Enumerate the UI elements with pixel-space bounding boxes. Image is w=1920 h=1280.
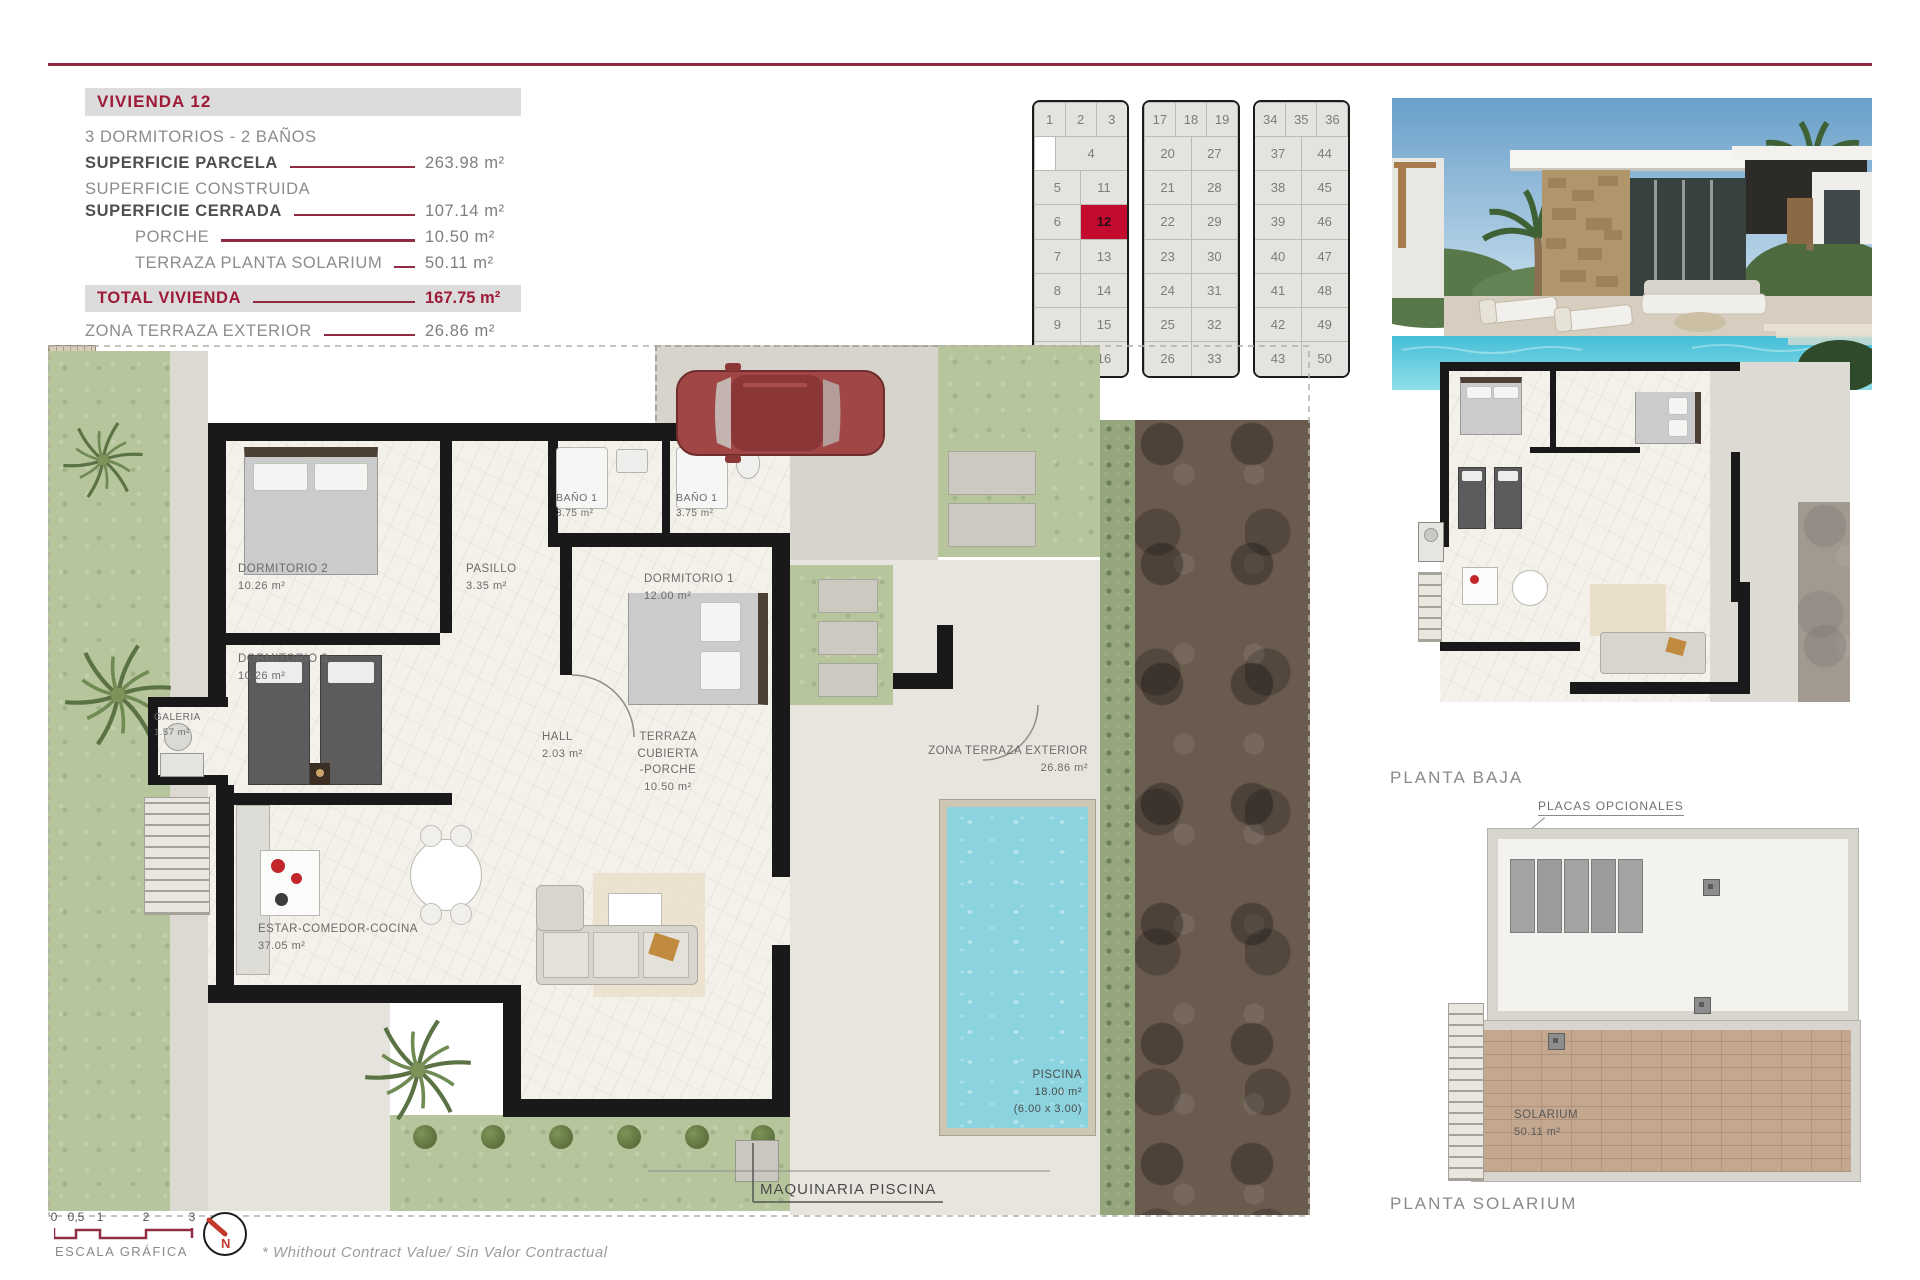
main-floor-plan: DORMITORIO 2 10.26 m² DORMITORIO 3 10.26… [48, 345, 1310, 1217]
leader-line [324, 334, 415, 336]
spec-row: TERRAZA PLANTA SOLARIUM 50.11 m² [85, 254, 521, 273]
site-grid-cell: 39 [1254, 204, 1302, 239]
scale-tick: 0 [51, 1210, 58, 1224]
site-grid-cell: 22 [1144, 204, 1192, 239]
site-grid-cell: 19 [1206, 102, 1238, 137]
site-grid-row: 4249 [1255, 308, 1348, 342]
site-grid-cell: 34 [1254, 102, 1286, 137]
spec-label: SUPERFICIE CERRADA [85, 202, 282, 221]
site-grid-row: 3845 [1255, 171, 1348, 205]
room-label: PISCINA 18.00 m² (6.00 x 3.00) [960, 1067, 1082, 1118]
leader-line [253, 301, 415, 303]
room-label: BAÑO 1 3.75 m² [676, 491, 718, 522]
spec-row: SUPERFICIE CONSTRUIDA [85, 180, 521, 199]
site-grid-cell: 42 [1254, 307, 1302, 342]
spec-row: PORCHE 10.50 m² [85, 228, 521, 247]
north-arrow: N [200, 1210, 250, 1260]
thumb-wall [1731, 452, 1740, 602]
thumb-bed [1635, 392, 1701, 444]
thumb-sofa [1600, 632, 1706, 674]
site-grid-cell: 35 [1285, 102, 1317, 137]
solarium-wood-deck [1472, 1021, 1860, 1181]
site-grid-cell: 3 [1096, 102, 1128, 137]
site-grid-cell: 32 [1191, 307, 1239, 342]
site-grid-cell: 21 [1144, 170, 1192, 205]
site-grid: 1234511612713814915101617181920272128222… [1032, 100, 1350, 378]
room-area: 26.86 m² [1041, 762, 1088, 774]
room-name: DORMITORIO 3 [238, 653, 328, 665]
scale-tick: 1 [97, 1210, 104, 1224]
room-label: HALL 2.03 m² [542, 729, 583, 763]
spec-row: ZONA TERRAZA EXTERIOR 26.86 m² [85, 322, 521, 341]
site-grid-row: 612 [1034, 205, 1127, 239]
site-grid-row: 814 [1034, 273, 1127, 307]
thumb-galeria [1418, 522, 1444, 562]
site-grid-cell: 11 [1080, 170, 1128, 205]
room-label: DORMITORIO 2 10.26 m² [238, 561, 328, 595]
room-label: PASILLO 3.35 m² [466, 561, 517, 595]
site-grid-row: 3946 [1255, 205, 1348, 239]
room-area: 12.00 m² [644, 590, 691, 602]
site-grid-cell: 14 [1080, 273, 1128, 308]
room-area: 3.75 m² [676, 508, 713, 519]
leader-line [394, 266, 415, 268]
planta-solarium-thumbnail: SOLARIUM 50.11 m² [1448, 825, 1872, 1187]
site-grid-cell: 37 [1254, 136, 1302, 171]
site-grid-cell: 45 [1301, 170, 1349, 205]
site-grid-cell: 36 [1316, 102, 1348, 137]
total-row: TOTAL VIVIENDA 167.75 m² [85, 285, 521, 312]
site-grid-cell: 25 [1144, 307, 1192, 342]
planta-baja-thumbnail [1400, 352, 1860, 762]
spec-label: PORCHE [135, 228, 209, 247]
scale-label: ESCALA GRÁFICA [55, 1244, 188, 1259]
spec-value: 10.50 m² [425, 228, 521, 247]
room-area: 1.57 m² [154, 727, 190, 738]
thumb-wall [1440, 642, 1580, 651]
room-dims: (6.00 x 3.00) [1014, 1103, 1082, 1115]
site-grid-cell: 48 [1301, 273, 1349, 308]
thumb-table [1512, 570, 1548, 606]
site-grid-cell: 18 [1175, 102, 1207, 137]
room-label: ESTAR-COMEDOR-COCINA 37.05 m² [258, 921, 418, 955]
site-grid-cell: 15 [1080, 307, 1128, 342]
solar-panel [1510, 859, 1535, 933]
site-grid-cell: 5 [1034, 170, 1082, 205]
maquinaria-label: MAQUINARIA PISCINA [760, 1179, 936, 1201]
site-grid-row: 2027 [1144, 136, 1237, 170]
total-label: TOTAL VIVIENDA [97, 289, 241, 308]
leader-line [221, 239, 415, 242]
site-grid-row: 3744 [1255, 136, 1348, 170]
site-grid-cell-highlighted: 12 [1080, 204, 1128, 239]
thumb-bed [1494, 467, 1522, 529]
site-grid-cell: 41 [1254, 273, 1302, 308]
site-grid-row: 2330 [1144, 239, 1237, 273]
north-label: N [221, 1236, 230, 1251]
rooflight [1694, 997, 1711, 1014]
thumb-rug [1590, 584, 1666, 636]
solar-panel [1591, 859, 1616, 933]
site-grid-cell: 44 [1301, 136, 1349, 171]
site-grid-cell: 7 [1034, 239, 1082, 274]
site-grid-row: 123 [1034, 102, 1127, 136]
thumb-soil [1798, 502, 1850, 702]
room-name: HALL [542, 731, 573, 743]
site-grid-cell: 28 [1191, 170, 1239, 205]
scale-tick: 0,5 [68, 1210, 85, 1224]
scale-bar-graphic [54, 1226, 196, 1242]
site-grid-cell: 46 [1301, 204, 1349, 239]
thumb-wall [1570, 682, 1750, 694]
room-area: 2.03 m² [542, 748, 583, 760]
thumb-stairs [1418, 572, 1442, 642]
site-grid-cell: 2 [1065, 102, 1097, 137]
site-grid-row: 511 [1034, 171, 1127, 205]
solarium-stairs [1448, 1003, 1484, 1181]
room-name: ZONA TERRAZA EXTERIOR [928, 745, 1088, 757]
room-area: 10.50 m² [644, 781, 691, 793]
thumb-wall [1530, 447, 1640, 453]
planta-solarium-label: PLANTA SOLARIUM [1390, 1194, 1577, 1214]
site-grid-row: 915 [1034, 308, 1127, 342]
room-name: DORMITORIO 1 [644, 573, 734, 585]
villa-photo-art [1392, 98, 1872, 390]
room-area: 3.35 m² [466, 580, 507, 592]
planta-baja-label: PLANTA BAJA [1390, 768, 1523, 788]
site-grid-cell: 1 [1034, 102, 1066, 137]
room-label: BAÑO 1 3.75 m² [556, 491, 598, 522]
scale-tick: 3 [189, 1210, 196, 1224]
site-grid-cell: 13 [1080, 239, 1128, 274]
spec-subtitle: 3 DORMITORIOS - 2 BAÑOS [85, 128, 521, 147]
thumb-wall [1440, 362, 1740, 371]
site-grid-cell: 30 [1191, 239, 1239, 274]
spec-label: ZONA TERRAZA EXTERIOR [85, 322, 312, 341]
site-grid-cell: 4 [1055, 136, 1128, 171]
top-rule [48, 63, 1872, 66]
thumb-pillow [1665, 637, 1686, 656]
site-grid-cell: 27 [1191, 136, 1239, 171]
site-grid-cell: 6 [1034, 204, 1082, 239]
solar-panel [1618, 859, 1643, 933]
room-area: 10.26 m² [238, 670, 285, 682]
room-label: GALERIA 1.57 m² [154, 711, 201, 740]
site-grid-cell: 9 [1034, 307, 1082, 342]
spec-value: 263.98 m² [425, 154, 521, 173]
leader-line [290, 166, 415, 168]
site-grid-block: 3435363744384539464047414842494350 [1253, 100, 1350, 378]
solar-panel [1564, 859, 1589, 933]
site-grid-cell: 40 [1254, 239, 1302, 274]
site-grid-row: 2229 [1144, 205, 1237, 239]
site-grid-row: 4 [1034, 136, 1127, 170]
site-grid-block: 1718192027212822292330243125322633 [1142, 100, 1239, 378]
site-grid-row: 343536 [1255, 102, 1348, 136]
site-grid-row: 4047 [1255, 239, 1348, 273]
subtitle-text: 3 DORMITORIOS - 2 BAÑOS [85, 128, 317, 147]
room-label: SOLARIUM 50.11 m² [1514, 1107, 1578, 1141]
room-area: 3.75 m² [556, 508, 593, 519]
info-panel: VIVIENDA 12 3 DORMITORIOS - 2 BAÑOS SUPE… [85, 88, 521, 341]
thumb-bed [1458, 467, 1486, 529]
room-name: SOLARIUM [1514, 1109, 1578, 1121]
scale-tick: 2 [143, 1210, 150, 1224]
room-label: TERRAZA CUBIERTA -PORCHE 10.50 m² [608, 729, 728, 796]
site-grid-cell: 29 [1191, 204, 1239, 239]
solar-panel [1537, 859, 1562, 933]
spec-value: 107.14 m² [425, 202, 521, 221]
thumb-wall [1440, 362, 1449, 547]
footnote: * Whithout Contract Value/ Sin Valor Con… [262, 1244, 608, 1261]
villa-photo [1392, 98, 1872, 390]
site-grid-cell [1034, 136, 1056, 171]
room-name: TERRAZA CUBIERTA [637, 731, 698, 760]
leader-line [294, 214, 415, 216]
thumb-bed [1460, 377, 1522, 435]
site-grid-cell: 31 [1191, 273, 1239, 308]
room-name: PASILLO [466, 563, 517, 575]
site-grid-cell: 8 [1034, 273, 1082, 308]
site-grid-cell: 17 [1144, 102, 1176, 137]
placas-opcionales-label: PLACAS OPCIONALES [1538, 799, 1684, 816]
thumb-island [1462, 567, 1498, 605]
room-name: GALERIA [154, 712, 201, 723]
site-grid-row: 4148 [1255, 273, 1348, 307]
spec-value: 26.86 m² [425, 322, 521, 341]
spec-label: TERRAZA PLANTA SOLARIUM [135, 254, 382, 273]
spec-label: SUPERFICIE PARCELA [85, 154, 278, 173]
room-name: BAÑO 1 [676, 492, 718, 504]
spec-value: 50.11 m² [425, 254, 521, 273]
site-grid-cell: 47 [1301, 239, 1349, 274]
total-value: 167.75 m² [425, 289, 521, 308]
site-grid-row: 2431 [1144, 273, 1237, 307]
rooflight [1548, 1033, 1565, 1050]
room-area: 50.11 m² [1514, 1126, 1561, 1138]
rooflight [1703, 879, 1720, 896]
room-label: DORMITORIO 1 12.00 m² [644, 571, 734, 605]
room-label: DORMITORIO 3 10.26 m² [238, 651, 328, 685]
site-grid-row: 2532 [1144, 308, 1237, 342]
room-name: BAÑO 1 [556, 492, 598, 504]
north-arrow-graphic [200, 1210, 250, 1260]
thumb-wall [1550, 371, 1556, 451]
spec-label: SUPERFICIE CONSTRUIDA [85, 180, 310, 199]
room-area: 37.05 m² [258, 940, 305, 952]
spec-row: SUPERFICIE CERRADA 107.14 m² [85, 202, 521, 221]
site-grid-block: 12345116127138149151016 [1032, 100, 1129, 378]
vivienda-title: VIVIENDA 12 [85, 88, 521, 116]
brochure-page: { "colors":{"accent":"#8f2b42","title_re… [0, 0, 1920, 1280]
site-grid-cell: 49 [1301, 307, 1349, 342]
site-grid-row: 2128 [1144, 171, 1237, 205]
site-grid-cell: 38 [1254, 170, 1302, 205]
room-label: ZONA TERRAZA EXTERIOR 26.86 m² [918, 743, 1088, 777]
site-grid-cell: 24 [1144, 273, 1192, 308]
site-grid-cell: 23 [1144, 239, 1192, 274]
site-grid-row: 713 [1034, 239, 1127, 273]
room-area: 18.00 m² [1035, 1086, 1082, 1098]
room-name: ESTAR-COMEDOR-COCINA [258, 923, 418, 935]
spec-row: SUPERFICIE PARCELA 263.98 m² [85, 154, 521, 173]
thumb-wall [1738, 582, 1750, 694]
site-grid-row: 171819 [1144, 102, 1237, 136]
room-name: PISCINA [1032, 1069, 1082, 1081]
room-name: DORMITORIO 2 [238, 563, 328, 575]
site-grid-cell: 20 [1144, 136, 1192, 171]
room-area: 10.26 m² [238, 580, 285, 592]
room-name-2: -PORCHE [640, 764, 697, 776]
